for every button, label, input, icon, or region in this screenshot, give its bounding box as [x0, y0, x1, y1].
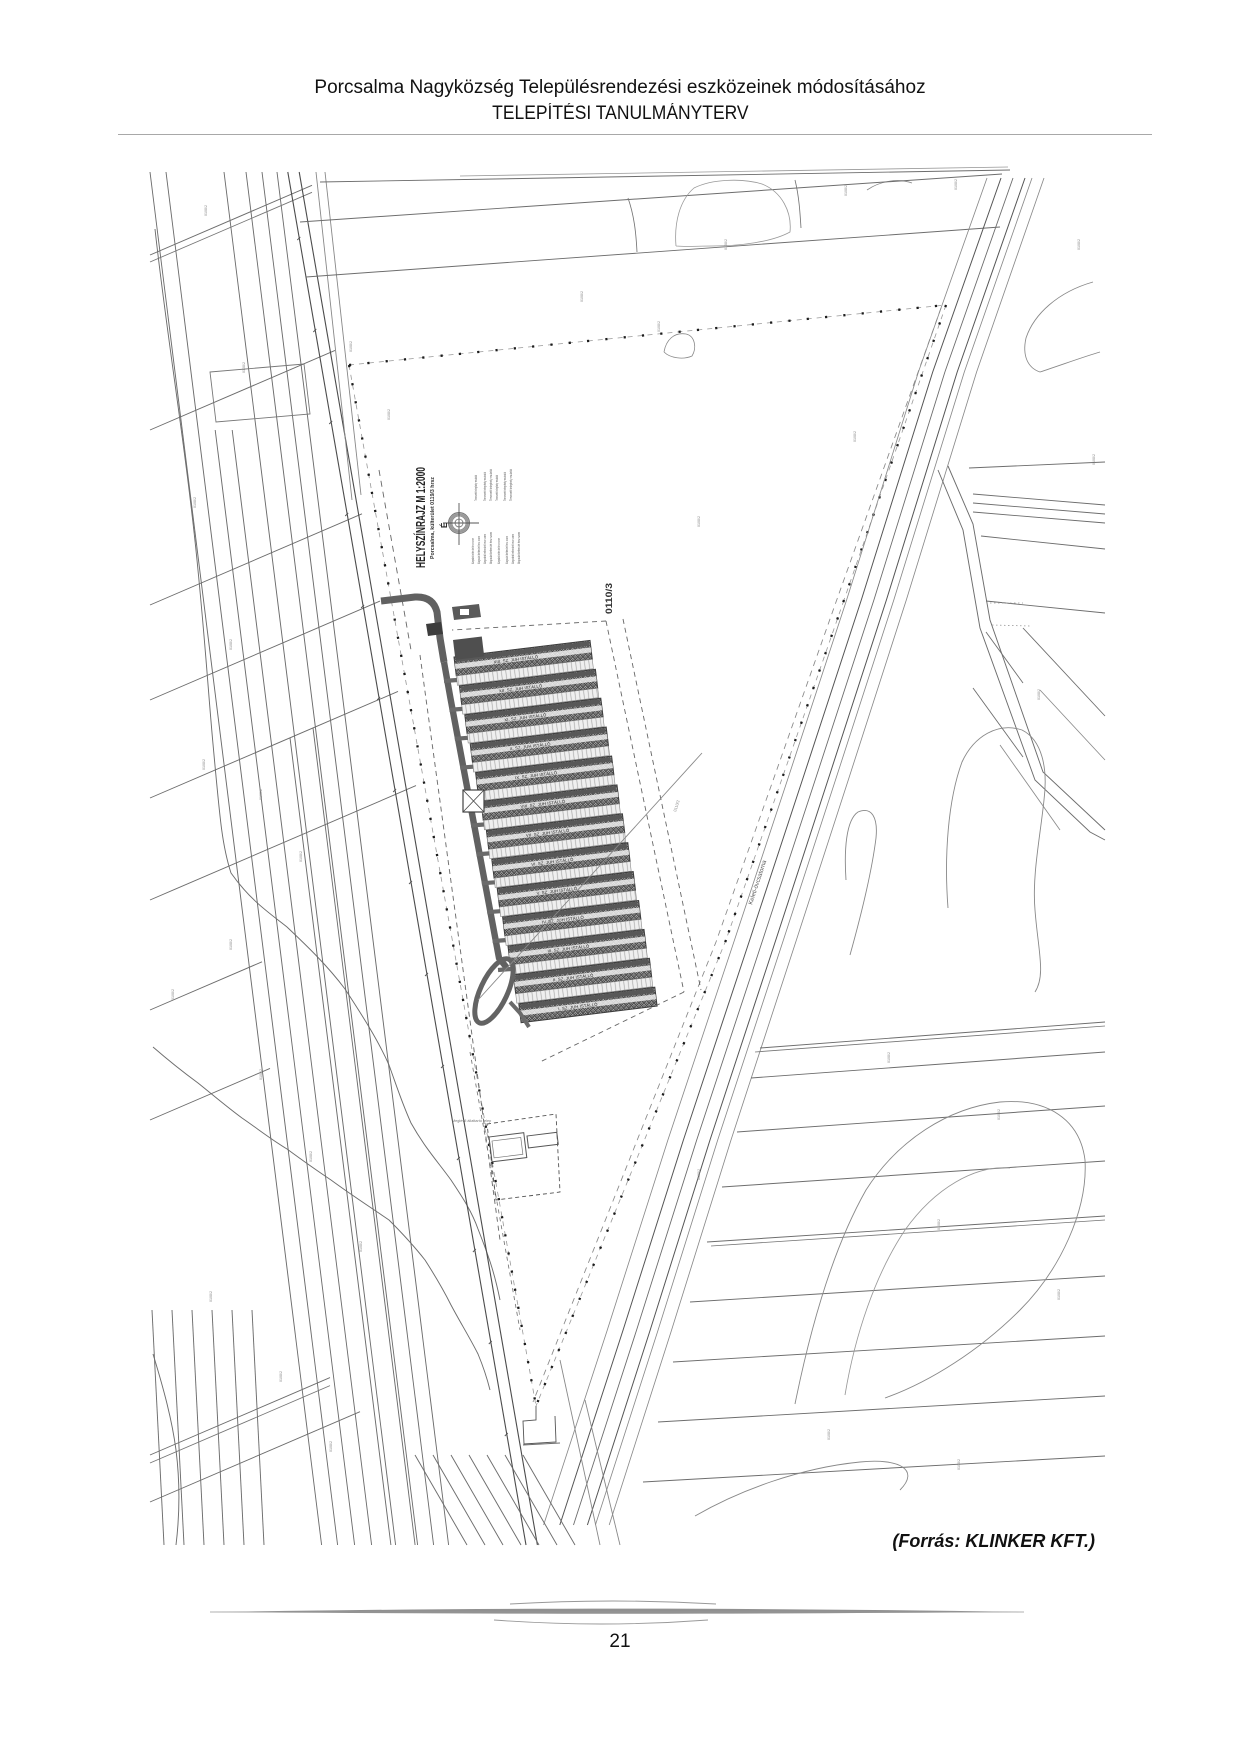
svg-text:Alapadat belterulet hrsz szam: Alapadat belterulet hrsz szam — [489, 532, 493, 564]
svg-text:Tervezett telephely mutatói: Tervezett telephely mutatói — [489, 469, 493, 501]
svg-text:Alapadat belterulet hrsz szam: Alapadat belterulet hrsz szam — [471, 538, 475, 564]
svg-text:0108/2: 0108/2 — [997, 1109, 1001, 1120]
svg-text:Alapadat belterulet hrsz szam: Alapadat belterulet hrsz szam — [511, 534, 515, 564]
svg-text:0108/2: 0108/2 — [202, 759, 206, 770]
svg-text:Tervezett telephely mutatói: Tervezett telephely mutatói — [495, 475, 499, 501]
svg-text:Tervezett telephely mutatói: Tervezett telephely mutatói — [483, 472, 487, 501]
svg-text:0108/2: 0108/2 — [229, 939, 233, 950]
svg-text:0110/2: 0110/2 — [672, 799, 681, 813]
svg-text:0108/2: 0108/2 — [171, 989, 175, 1000]
svg-text:0108/2: 0108/2 — [204, 205, 208, 216]
svg-text:0108/2: 0108/2 — [957, 1459, 961, 1470]
svg-text:0108/2: 0108/2 — [580, 291, 584, 302]
svg-text:0108/2: 0108/2 — [697, 516, 701, 527]
svg-text:0108/2: 0108/2 — [349, 341, 353, 352]
svg-text:0108/2: 0108/2 — [242, 362, 246, 373]
svg-text:Alapadat belterulet hrsz szam: Alapadat belterulet hrsz szam — [497, 538, 501, 564]
svg-text:0108/2: 0108/2 — [209, 1291, 213, 1302]
svg-text:0108/2: 0108/2 — [259, 1069, 263, 1080]
svg-text:0108/2: 0108/2 — [1037, 689, 1041, 700]
svg-text:0108/2: 0108/2 — [697, 1169, 701, 1180]
svg-text:Alapadat belterulet hrsz szam: Alapadat belterulet hrsz szam — [483, 534, 487, 564]
svg-text:0108/2: 0108/2 — [299, 851, 303, 862]
svg-text:0108/2: 0108/2 — [954, 179, 958, 190]
svg-text:0108/2: 0108/2 — [844, 185, 848, 196]
svg-text:0108/2: 0108/2 — [853, 431, 857, 442]
svg-text:0108/2: 0108/2 — [309, 1151, 313, 1162]
svg-text:0108/2: 0108/2 — [1077, 239, 1081, 250]
svg-text:0108/2: 0108/2 — [387, 409, 391, 420]
svg-text:0108/2: 0108/2 — [657, 321, 661, 332]
svg-text:Alapadat belterulet hrsz szam: Alapadat belterulet hrsz szam — [505, 536, 509, 564]
svg-text:Keleti-övcsatorna: Keleti-övcsatorna — [748, 859, 768, 906]
svg-text:0108/2: 0108/2 — [827, 1429, 831, 1440]
svg-text:Tervezett telephely mutatói: Tervezett telephely mutatói — [509, 469, 513, 501]
svg-text:É: É — [440, 522, 449, 528]
svg-text:0108/2: 0108/2 — [329, 1441, 333, 1452]
svg-text:Alapadat belterulet hrsz szam: Alapadat belterulet hrsz szam — [477, 536, 481, 564]
svg-text:Tervezett telephely mutatói: Tervezett telephely mutatói — [474, 475, 478, 501]
svg-text:0108/2: 0108/2 — [193, 497, 197, 508]
svg-text:0108/2: 0108/2 — [724, 239, 728, 250]
svg-text:0108/2: 0108/2 — [229, 639, 233, 650]
svg-text:0108/2: 0108/2 — [1092, 454, 1096, 465]
svg-text:Meglévő állattartó telep: Meglévő állattartó telep — [452, 1119, 491, 1123]
svg-text:0108/2: 0108/2 — [1057, 1289, 1061, 1300]
svg-text:Alapadat belterulet hrsz szam: Alapadat belterulet hrsz szam — [517, 532, 521, 564]
svg-text:0108/2: 0108/2 — [259, 789, 263, 800]
svg-text:0108/2: 0108/2 — [359, 1241, 363, 1252]
svg-text:Porcsalma, külterület 0119/3 h: Porcsalma, külterület 0119/3 hrsz — [430, 477, 436, 559]
svg-text:0108/2: 0108/2 — [279, 1371, 283, 1382]
svg-text:0108/2: 0108/2 — [887, 1052, 891, 1063]
svg-text:Tervezett telephely mutatói: Tervezett telephely mutatói — [503, 472, 507, 501]
svg-text:0108/2: 0108/2 — [937, 1219, 941, 1230]
svg-text:HELYSZÍNRAJZ M 1:2000: HELYSZÍNRAJZ M 1:2000 — [413, 467, 428, 568]
svg-text:0110/3: 0110/3 — [604, 583, 614, 614]
